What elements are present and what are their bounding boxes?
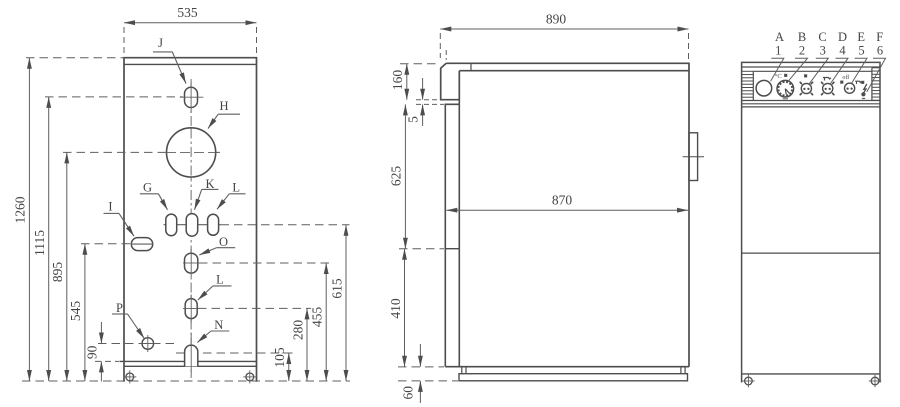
svg-text:90: 90 (85, 345, 100, 359)
svg-text:I: I (108, 200, 112, 214)
svg-text:P: P (116, 301, 123, 315)
svg-text:G: G (143, 180, 152, 194)
svg-text:L: L (216, 273, 224, 287)
svg-text:C: C (818, 30, 826, 44)
svg-text:B: B (798, 30, 806, 44)
svg-text:535: 535 (177, 5, 198, 20)
svg-text:455: 455 (310, 307, 325, 328)
svg-text:5: 5 (858, 43, 864, 57)
svg-text:105: 105 (272, 347, 287, 368)
svg-text:F: F (876, 30, 883, 44)
svg-text:890: 890 (546, 11, 567, 26)
svg-text:6: 6 (877, 43, 883, 57)
svg-text:O: O (219, 235, 228, 249)
svg-text:895: 895 (50, 262, 65, 283)
svg-text:N: N (214, 318, 223, 332)
svg-text:A: A (775, 30, 784, 44)
svg-text:545: 545 (68, 301, 83, 322)
svg-text:1: 1 (775, 43, 781, 57)
svg-text:60: 60 (400, 386, 415, 400)
svg-text:H: H (219, 99, 228, 113)
svg-text:870: 870 (552, 193, 573, 208)
svg-text:D: D (838, 30, 847, 44)
svg-text:J: J (158, 36, 163, 50)
svg-text:625: 625 (389, 166, 404, 187)
svg-text:3: 3 (820, 43, 826, 57)
svg-text:160: 160 (390, 70, 405, 91)
svg-text:L: L (232, 180, 240, 194)
svg-text:1115: 1115 (32, 230, 47, 256)
svg-text:280: 280 (290, 320, 305, 341)
svg-text:5: 5 (406, 116, 421, 123)
svg-text:2: 2 (799, 43, 805, 57)
svg-text:410: 410 (388, 298, 403, 319)
svg-text:615: 615 (329, 278, 344, 299)
svg-text:°C: °C (775, 73, 782, 80)
svg-text:E: E (857, 30, 865, 44)
svg-text:1260: 1260 (13, 196, 28, 223)
svg-text:4: 4 (839, 43, 846, 57)
svg-text:off: off (842, 74, 849, 81)
